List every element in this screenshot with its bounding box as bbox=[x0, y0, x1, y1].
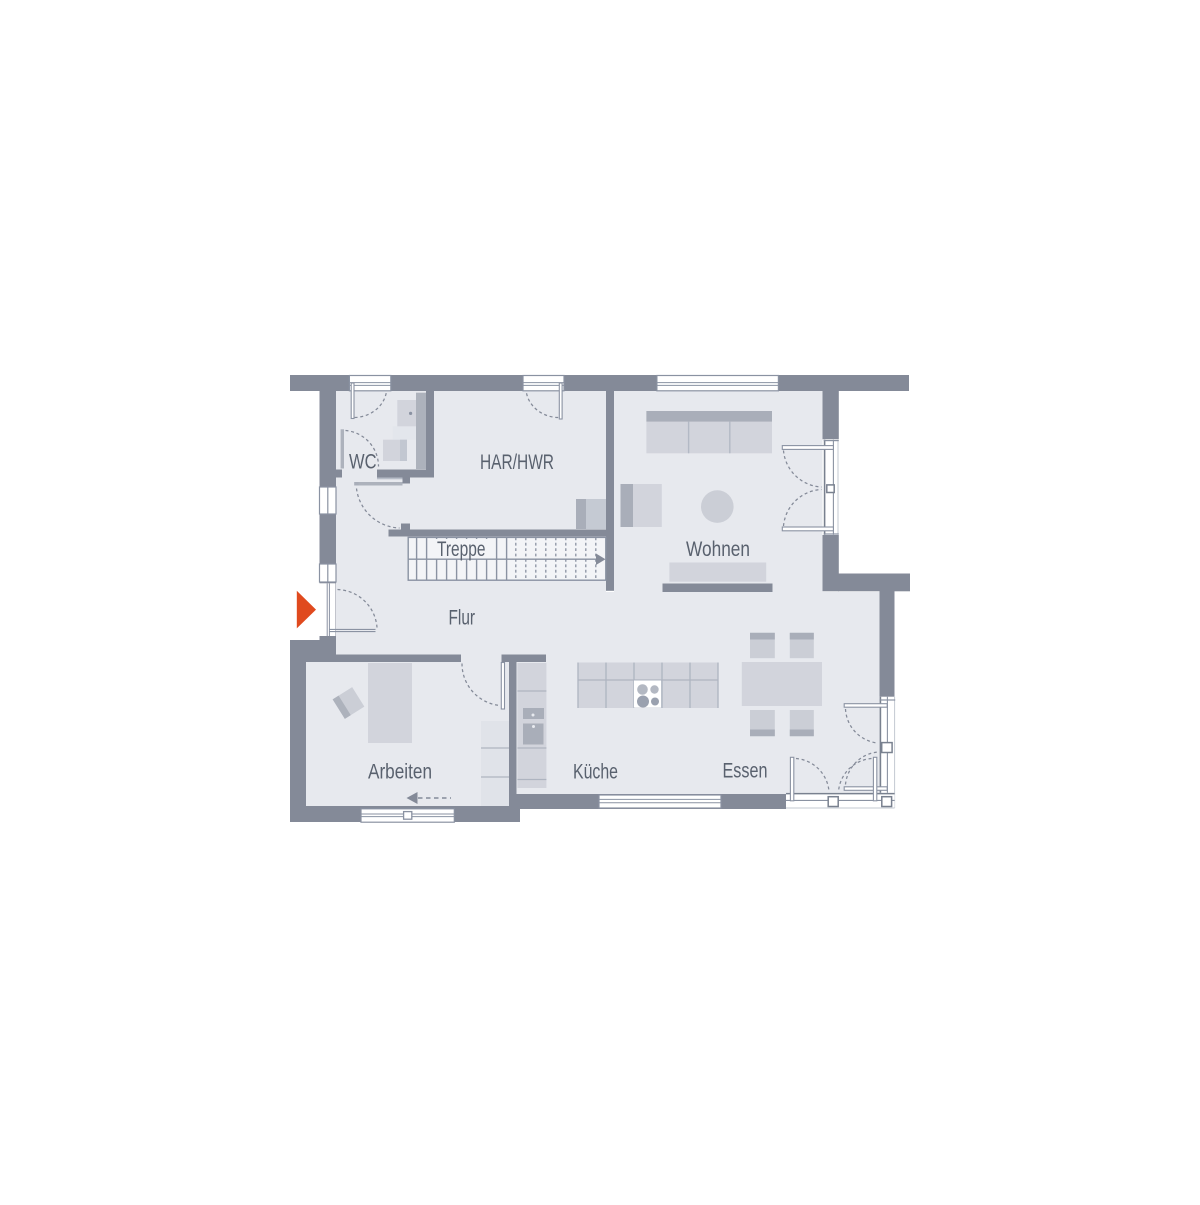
svg-text:Essen: Essen bbox=[723, 760, 768, 783]
svg-text:Flur: Flur bbox=[449, 607, 476, 630]
svg-text:Treppe: Treppe bbox=[437, 538, 486, 561]
svg-text:Arbeiten: Arbeiten bbox=[368, 761, 432, 784]
svg-text:Wohnen: Wohnen bbox=[686, 538, 750, 561]
svg-text:Küche: Küche bbox=[573, 761, 618, 784]
svg-text:WC: WC bbox=[349, 451, 377, 474]
svg-text:HAR/HWR: HAR/HWR bbox=[480, 451, 554, 474]
